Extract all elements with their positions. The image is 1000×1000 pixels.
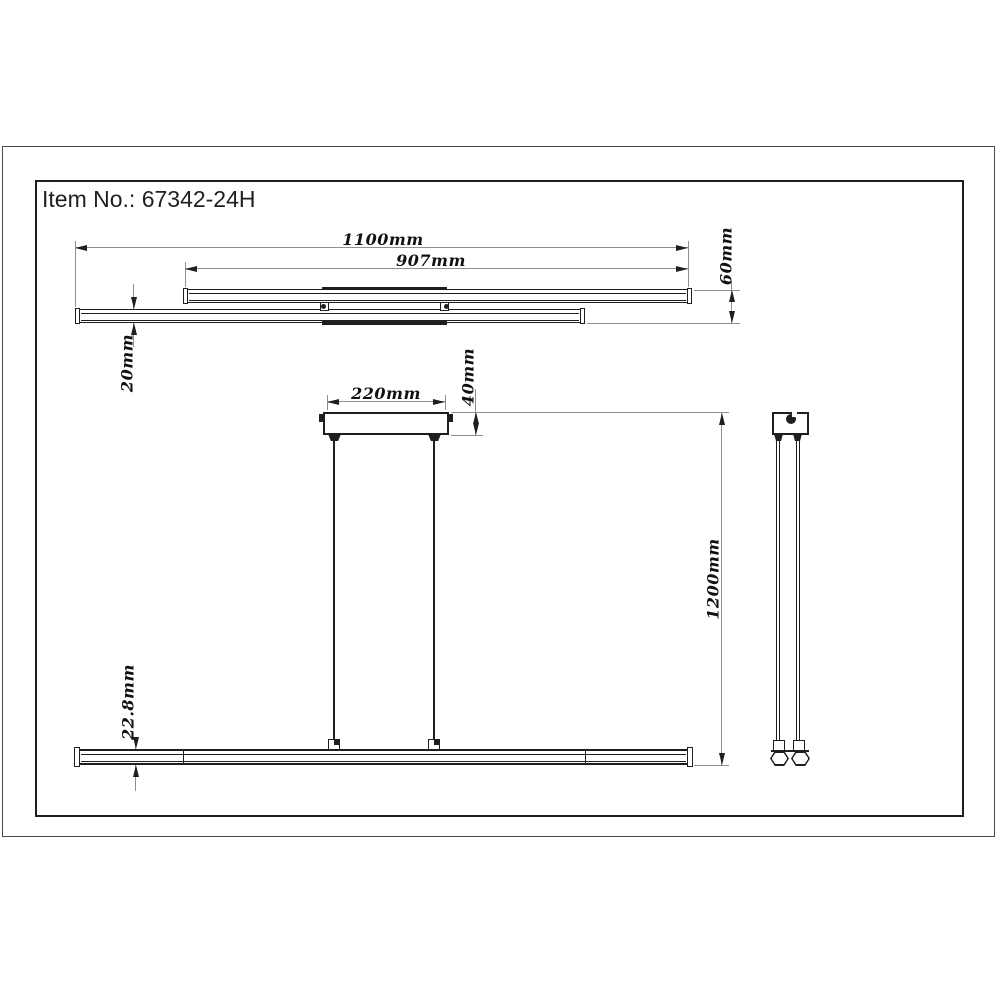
top-view-lower-bar-end-cap xyxy=(75,308,80,324)
top-view-upper-bar-end-cap xyxy=(687,288,692,304)
front-view-canopy xyxy=(323,412,449,435)
dim-label-total-length: 1100mm xyxy=(342,230,423,249)
dim-label-canopy-width: 220mm xyxy=(351,384,421,403)
top-view-upper-bar-inner-line xyxy=(189,300,686,301)
extension-line xyxy=(451,412,729,413)
front-view-light-bar xyxy=(75,749,692,765)
front-view-cable-connector-notch xyxy=(334,739,340,745)
dim-label-bar-thickness: 20mm xyxy=(118,334,137,392)
top-view-upper-bar-end-cap xyxy=(183,288,188,304)
arrowhead xyxy=(75,245,87,251)
arrowhead xyxy=(729,290,735,302)
top-view-upper-bar xyxy=(183,289,692,303)
front-view-canopy-screw xyxy=(319,414,324,422)
front-view-canopy-screw xyxy=(448,414,453,422)
top-view-upper-bar-inner-line xyxy=(189,293,686,294)
side-view-suspension-cable xyxy=(796,441,800,741)
sheet-inner-border xyxy=(35,180,964,817)
arrowhead xyxy=(433,399,445,405)
top-view-lower-bar-end-cap xyxy=(580,308,585,324)
arrowhead xyxy=(719,413,725,425)
front-view-bar-joint xyxy=(183,750,184,764)
top-view-cable-bracket-pin xyxy=(444,304,449,309)
arrowhead xyxy=(131,297,137,309)
top-view-lower-bar-inner-line xyxy=(81,313,579,314)
extension-line xyxy=(587,323,740,324)
arrowhead xyxy=(473,423,479,435)
front-view-bar-inner-line xyxy=(81,754,686,755)
front-view-cable-connector-notch xyxy=(434,739,440,745)
extension-line xyxy=(75,241,76,307)
front-view-bar-inner-line xyxy=(81,761,686,762)
extension-line xyxy=(445,395,446,410)
dim-label-bar-profile-height: 22.8mm xyxy=(119,664,138,740)
top-view-upper-led-strip xyxy=(322,287,447,291)
arrowhead xyxy=(327,399,339,405)
side-view-cable-hole-notch xyxy=(792,411,797,417)
item-number-label: Item No.: 67342-24H xyxy=(42,186,256,213)
dim-label-upper-bar-length: 907mm xyxy=(396,251,466,270)
arrowhead xyxy=(729,311,735,323)
drawing-sheet: Item No.: 67342-24H 1100mm 907mm 60mm 20… xyxy=(0,0,1000,1000)
arrowhead xyxy=(676,266,688,272)
front-view-bar-end-cap xyxy=(74,747,80,767)
top-view-lower-led-strip xyxy=(322,321,447,325)
arrowhead xyxy=(185,266,197,272)
dim-label-canopy-height: 40mm xyxy=(459,348,478,406)
arrowhead xyxy=(719,753,725,765)
front-view-bar-joint xyxy=(585,750,586,764)
front-view-suspension-cable xyxy=(433,441,435,749)
front-view-suspension-cable xyxy=(333,441,335,749)
dim-label-stack-height: 60mm xyxy=(717,227,736,285)
arrowhead xyxy=(676,245,688,251)
dim-label-suspension-drop: 1200mm xyxy=(704,538,723,619)
extension-line xyxy=(451,435,483,436)
top-view-cable-bracket-pin xyxy=(321,304,326,309)
side-view-suspension-cable xyxy=(776,441,780,741)
arrowhead xyxy=(133,765,139,777)
extension-line xyxy=(694,765,729,766)
front-view-bar-end-cap xyxy=(687,747,693,767)
extension-line xyxy=(688,241,689,287)
